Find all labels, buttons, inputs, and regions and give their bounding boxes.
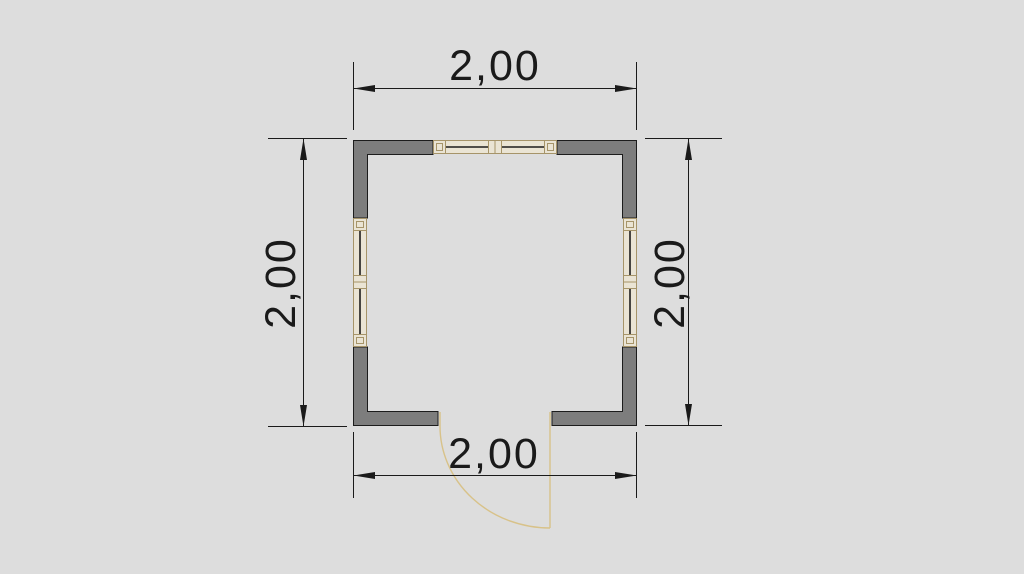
floor-plan-drawing: 2,00 2,00 2,00 2,00 <box>0 0 1024 574</box>
dimension-left: 2,00 <box>257 139 347 427</box>
window-right <box>624 219 637 347</box>
wall-top-left <box>354 141 434 219</box>
window-top-center-mullion-b <box>495 141 502 154</box>
window-right-bottom-mullion <box>624 335 637 347</box>
dimension-right-label: 2,00 <box>646 237 694 329</box>
dimension-arrow-bottom-right <box>615 472 637 479</box>
dimension-top: 2,00 <box>354 42 637 130</box>
dimension-arrow-left-bottom <box>300 405 307 427</box>
dimension-arrow-left-top <box>300 139 307 161</box>
window-left-bottom-mullion <box>354 335 367 347</box>
window-left <box>354 219 367 347</box>
walls <box>354 141 637 426</box>
wall-top-right <box>557 141 637 219</box>
wall-bottom-left <box>354 347 439 426</box>
dimension-right: 2,00 <box>645 139 722 426</box>
window-right-center-mullion-a <box>624 276 637 283</box>
window-top <box>434 141 557 154</box>
window-top-center-mullion-a <box>489 141 496 154</box>
dimension-arrow-top-left <box>354 85 376 92</box>
floor-plan-canvas: 2,00 2,00 2,00 2,00 <box>0 0 1024 574</box>
dimension-top-label: 2,00 <box>449 42 541 90</box>
dimension-arrow-top-right <box>615 85 637 92</box>
window-right-top-mullion <box>624 219 637 231</box>
dimension-arrow-right-top <box>685 139 692 161</box>
window-left-center-mullion-b <box>354 282 367 289</box>
wall-bottom-right <box>552 347 637 426</box>
window-right-center-mullion-b <box>624 282 637 289</box>
dimension-bottom: 2,00 <box>354 430 637 498</box>
dimension-arrow-right-bottom <box>685 404 692 426</box>
dimension-arrow-bottom-left <box>354 472 376 479</box>
window-left-top-mullion <box>354 219 367 231</box>
window-left-center-mullion-a <box>354 276 367 283</box>
dimension-left-label: 2,00 <box>257 237 305 329</box>
dimension-bottom-label: 2,00 <box>448 430 540 478</box>
window-top-right-mullion <box>545 141 557 154</box>
window-top-left-mullion <box>434 141 446 154</box>
